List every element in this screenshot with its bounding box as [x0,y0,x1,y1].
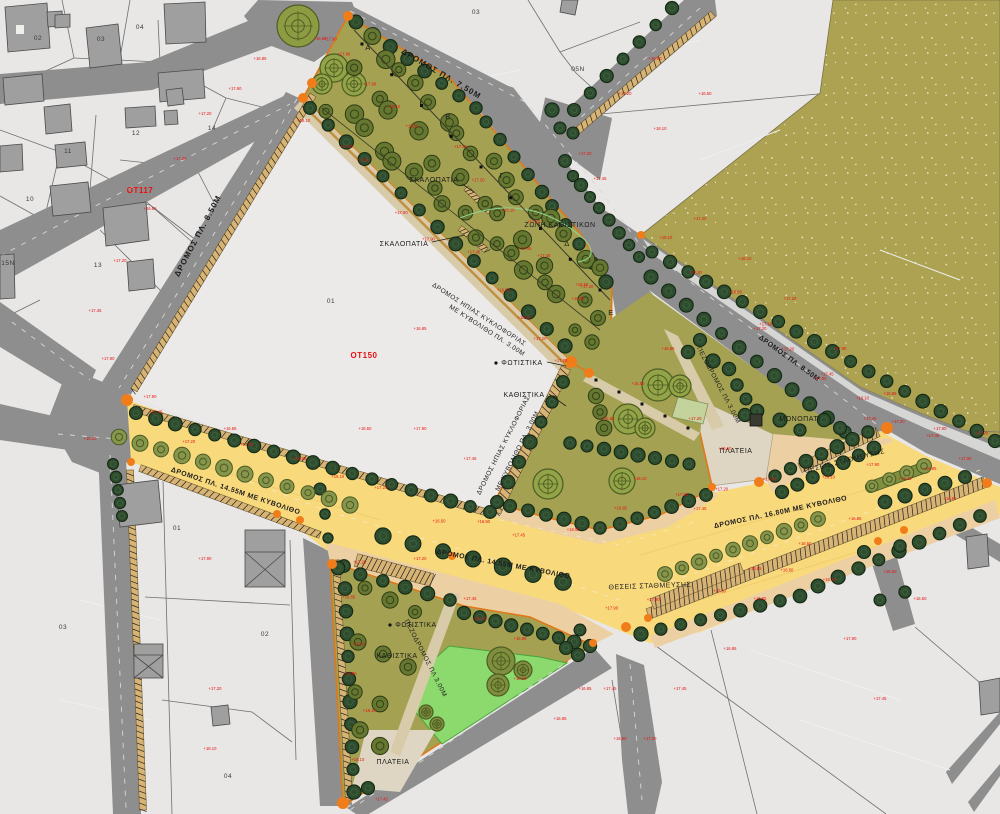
svg-text:+17.20: +17.20 [374,485,388,490]
svg-text:ΦΩΤΙΣΤΙΚΑ: ΦΩΤΙΣΤΙΚΑ [395,622,436,629]
svg-text:+17.20: +17.20 [715,487,729,492]
svg-text:Β: Β [445,112,451,121]
svg-text:02: 02 [261,631,269,638]
svg-text:+16.85: +16.85 [572,296,586,301]
svg-text:+16.50: +16.50 [632,381,646,386]
svg-text:+17.90: +17.90 [229,86,243,91]
svg-text:11: 11 [64,148,72,155]
svg-text:ΚΑΘΙΣΤΙΚΑ: ΚΑΘΙΣΤΙΚΑ [377,653,418,660]
svg-text:+17.45: +17.45 [467,250,481,255]
svg-text:+17.90: +17.90 [395,210,409,215]
svg-text:+17.90: +17.90 [240,442,254,447]
svg-text:+17.20: +17.20 [174,156,188,161]
svg-text:+16.50: +16.50 [497,288,511,293]
svg-text:+17.90: +17.90 [844,636,858,641]
svg-text:+18.10: +18.10 [518,315,532,320]
svg-text:+16.85: +16.85 [342,595,356,600]
svg-text:+16.50: +16.50 [799,541,813,546]
svg-text:+17.45: +17.45 [604,686,618,691]
svg-text:+17.45: +17.45 [594,176,608,181]
svg-text:+16.50: +16.50 [432,518,446,523]
svg-text:+16.50: +16.50 [614,736,628,741]
svg-text:+16.50: +16.50 [352,642,366,647]
svg-text:ΜΟΝΟΠΑΤΙ: ΜΟΝΟΠΑΤΙ [779,416,820,423]
svg-text:+16.85: +16.85 [293,456,307,461]
svg-text:+16.50: +16.50 [359,426,373,431]
svg-text:+16.50: +16.50 [780,567,794,572]
svg-text:04: 04 [136,24,144,31]
svg-text:+17.90: +17.90 [337,51,351,56]
svg-text:+18.10: +18.10 [514,676,528,681]
svg-text:+17.90: +17.90 [834,346,848,351]
svg-text:+16.85: +16.85 [944,496,958,501]
svg-text:+17.90: +17.90 [554,358,568,363]
svg-text:+18.10: +18.10 [474,616,488,621]
svg-text:+16.85: +16.85 [924,466,938,471]
svg-text:+18.10: +18.10 [84,436,98,441]
svg-text:+16.85: +16.85 [602,416,616,421]
svg-text:+16.85: +16.85 [614,506,628,511]
svg-text:ΟΤ150: ΟΤ150 [351,351,378,360]
svg-text:+16.85: +16.85 [884,391,898,396]
svg-text:+17.20: +17.20 [619,91,633,96]
svg-text:+17.90: +17.90 [814,376,828,381]
svg-text:+16.50: +16.50 [699,91,713,96]
svg-text:+17.20: +17.20 [209,686,223,691]
svg-text:+17.20: +17.20 [694,216,708,221]
svg-text:ΠΛΑΤΕΙΑ: ΠΛΑΤΕΙΑ [377,759,410,766]
svg-text:+18.10: +18.10 [204,746,218,751]
svg-text:+17.45: +17.45 [375,797,389,802]
svg-text:+17.20: +17.20 [182,439,196,444]
svg-text:+17.20: +17.20 [353,560,367,565]
svg-text:+18.10: +18.10 [502,208,516,213]
svg-text:+17.20: +17.20 [781,346,795,351]
svg-text:+17.20: +17.20 [534,336,548,341]
svg-text:+16.85: +16.85 [224,426,238,431]
svg-text:14: 14 [208,125,216,132]
svg-text:+16.85: +16.85 [254,56,268,61]
svg-text:+18.10: +18.10 [351,757,365,762]
svg-text:+17.20: +17.20 [754,326,768,331]
svg-text:+17.20: +17.20 [527,219,541,224]
svg-text:+16.50: +16.50 [883,569,897,574]
svg-text:01: 01 [327,298,335,305]
svg-text:15Ν: 15Ν [1,260,14,267]
svg-text:+17.90: +17.90 [934,426,948,431]
svg-text:+18.10: +18.10 [331,474,345,479]
svg-text:+17.90: +17.90 [675,492,689,497]
svg-text:+16.50: +16.50 [567,527,581,532]
svg-text:+16.50: +16.50 [649,56,663,61]
svg-text:02: 02 [34,35,42,42]
svg-text:+17.90: +17.90 [414,426,428,431]
svg-text:04: 04 [224,773,232,780]
svg-text:01: 01 [173,525,181,532]
svg-text:13: 13 [94,262,102,269]
svg-text:+17.45: +17.45 [874,696,888,701]
svg-text:10: 10 [26,196,34,203]
svg-text:+16.85: +16.85 [749,566,763,571]
svg-text:+17.45: +17.45 [537,253,551,258]
svg-text:+16.50: +16.50 [406,123,420,128]
svg-text:+17.90: +17.90 [144,394,158,399]
svg-text:+18.10: +18.10 [634,476,648,481]
svg-text:+17.20: +17.20 [472,177,486,182]
svg-text:ΣΚΑΛΟΠΑΤΙΑ: ΣΚΑΛΟΠΑΤΙΑ [410,177,459,184]
svg-text:+18.10: +18.10 [739,256,753,261]
svg-text:+17.45: +17.45 [89,308,103,313]
svg-text:+17.90: +17.90 [363,81,377,86]
svg-text:+16.85: +16.85 [514,636,528,641]
svg-text:+16.50: +16.50 [719,446,733,451]
svg-text:+17.90: +17.90 [357,157,371,162]
svg-text:+16.85: +16.85 [554,716,568,721]
svg-text:+17.45: +17.45 [512,532,526,537]
svg-text:03: 03 [59,624,67,631]
svg-text:ΦΩΤΙΣΤΙΚΑ: ΦΩΤΙΣΤΙΚΑ [501,360,542,367]
svg-text:Γ: Γ [500,171,505,180]
svg-text:+17.20: +17.20 [414,556,428,561]
svg-text:+16.85: +16.85 [144,206,158,211]
svg-text:+16.85: +16.85 [724,646,738,651]
svg-text:+16.85: +16.85 [849,516,863,521]
svg-text:Ε: Ε [608,308,614,317]
svg-text:+18.10: +18.10 [856,396,870,401]
svg-text:+18.10: +18.10 [823,577,837,582]
svg-text:+16.85: +16.85 [414,326,428,331]
svg-text:+18.10: +18.10 [654,126,668,131]
svg-text:+16.85: +16.85 [662,346,676,351]
svg-text:05Ν: 05Ν [571,66,584,73]
svg-text:+17.90: +17.90 [713,589,727,594]
svg-text:+17.45: +17.45 [464,596,478,601]
svg-text:+17.20: +17.20 [114,258,128,263]
svg-text:+17.20: +17.20 [579,151,593,156]
svg-text:+17.20: +17.20 [689,270,703,275]
svg-text:+18.10: +18.10 [363,708,377,713]
svg-text:+18.10: +18.10 [659,235,673,240]
svg-text:+17.20: +17.20 [784,296,798,301]
svg-text:12: 12 [132,130,140,137]
svg-text:ΟΤ117: ΟΤ117 [127,186,154,195]
svg-text:+17.45: +17.45 [864,416,878,421]
svg-text:+16.85: +16.85 [344,671,358,676]
svg-text:+17.45: +17.45 [454,144,468,149]
svg-text:+17.20: +17.20 [892,419,906,424]
svg-text:+17.90: +17.90 [975,430,989,435]
svg-text:+17.20: +17.20 [199,111,213,116]
svg-text:03: 03 [472,9,480,16]
svg-text:03: 03 [97,36,105,43]
svg-text:+17.45: +17.45 [519,246,533,251]
svg-text:+16.50: +16.50 [477,519,491,524]
svg-text:+17.20: +17.20 [644,736,658,741]
svg-text:+16.85: +16.85 [754,596,768,601]
svg-text:+16.85: +16.85 [729,289,743,294]
svg-text:+17.45: +17.45 [674,686,688,691]
svg-text:+17.45: +17.45 [464,456,478,461]
svg-text:+17.45: +17.45 [926,433,940,438]
svg-text:+16.85: +16.85 [579,686,593,691]
svg-text:+17.90: +17.90 [605,605,619,610]
svg-text:+18.10: +18.10 [297,118,311,123]
svg-text:+17.90: +17.90 [102,356,116,361]
svg-text:Δ: Δ [564,239,570,248]
svg-text:+17.45: +17.45 [694,506,708,511]
svg-text:+17.20: +17.20 [689,416,703,421]
svg-text:+16.50: +16.50 [914,596,928,601]
svg-text:+17.45: +17.45 [899,476,913,481]
svg-text:Α: Α [365,43,371,52]
svg-text:ΣΚΑΛΟΠΑΤΙΑ: ΣΚΑΛΟΠΑΤΙΑ [380,241,429,248]
svg-text:+17.90: +17.90 [763,477,777,482]
svg-text:+16.50: +16.50 [314,36,328,41]
svg-text:+17.90: +17.90 [866,462,880,467]
svg-text:+17.90: +17.90 [647,597,661,602]
svg-text:+18.10: +18.10 [822,474,836,479]
svg-text:+17.45: +17.45 [149,409,163,414]
svg-text:+17.90: +17.90 [422,236,436,241]
svg-text:+17.90: +17.90 [199,556,213,561]
svg-text:+17.45: +17.45 [340,144,354,149]
svg-text:+18.10: +18.10 [387,104,401,109]
svg-text:+17.90: +17.90 [959,456,973,461]
svg-text:+17.20: +17.20 [581,284,595,289]
svg-text:ΚΑΘΙΣΤΙΚΑ: ΚΑΘΙΣΤΙΚΑ [504,392,545,399]
